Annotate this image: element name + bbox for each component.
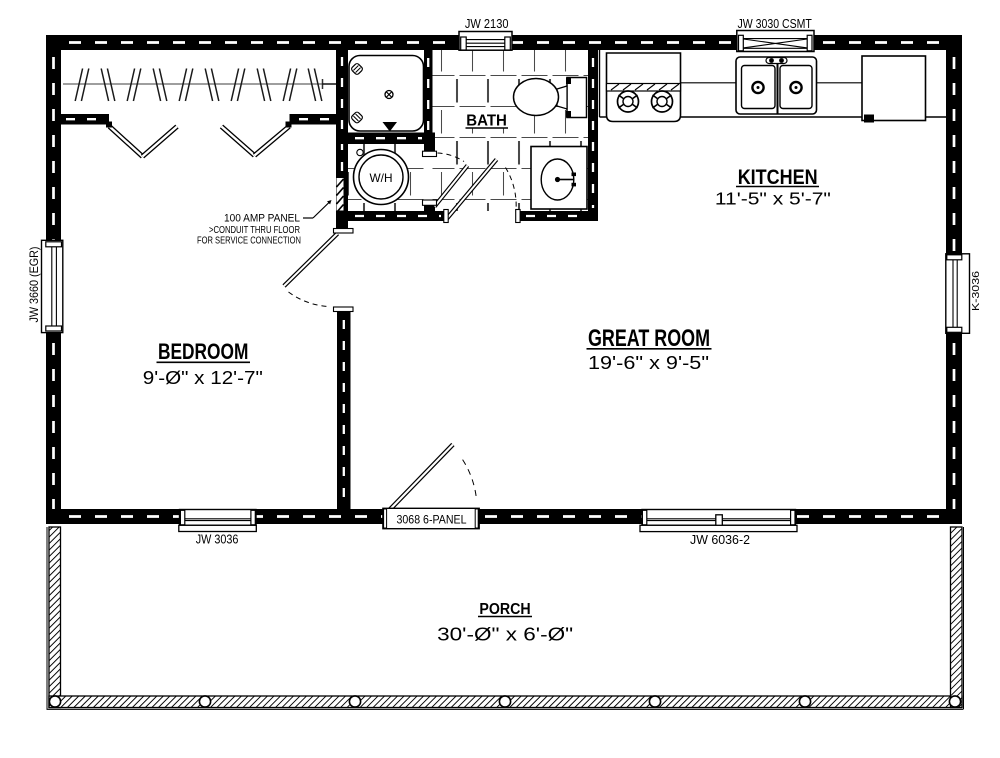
svg-text:100 AMP PANEL: 100 AMP PANEL [224, 213, 300, 225]
svg-text:W/H: W/H [370, 171, 393, 185]
svg-text:KITCHEN: KITCHEN [738, 166, 818, 189]
svg-text:JW 6036-2: JW 6036-2 [690, 533, 750, 547]
svg-text:K-3036: K-3036 [970, 271, 982, 311]
svg-text:30'-Ø" x 6'-Ø": 30'-Ø" x 6'-Ø" [437, 625, 573, 645]
svg-text:11'-5" x 5'-7": 11'-5" x 5'-7" [715, 189, 831, 209]
svg-text:FOR SERVICE CONNECTION: FOR SERVICE CONNECTION [197, 236, 301, 247]
svg-text:JW 2130: JW 2130 [465, 17, 509, 31]
svg-text:GREAT ROOM: GREAT ROOM [588, 325, 710, 352]
svg-text:JW 3030 CSMT: JW 3030 CSMT [738, 17, 813, 31]
svg-text:19'-6" x 9'-5": 19'-6" x 9'-5" [588, 353, 709, 373]
svg-text:JW 3660 (EGR): JW 3660 (EGR) [27, 246, 41, 322]
svg-text:BATH: BATH [466, 112, 507, 129]
svg-text:3068 6-PANEL: 3068 6-PANEL [397, 513, 467, 527]
svg-text:>CONDUIT THRU FLOOR: >CONDUIT THRU FLOOR [209, 225, 300, 236]
svg-text:BEDROOM: BEDROOM [158, 339, 248, 364]
svg-text:9'-Ø" x 12'-7": 9'-Ø" x 12'-7" [143, 368, 263, 388]
svg-text:PORCH: PORCH [479, 601, 530, 618]
svg-text:JW 3036: JW 3036 [196, 532, 239, 546]
